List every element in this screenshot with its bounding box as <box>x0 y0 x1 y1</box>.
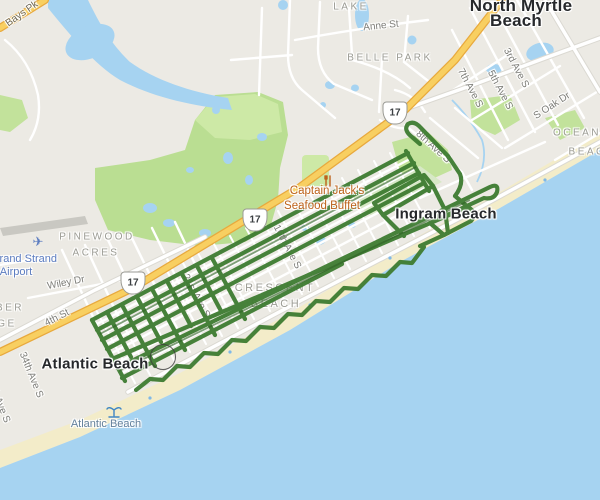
highway-17-shield-middle: 17 <box>243 209 268 232</box>
poi-label-seafood-buffet[interactable]: Seafood Buffet <box>284 200 360 212</box>
top-label-layer: 17 17 17 North Myrtle Beach Atlantic Bea… <box>0 0 600 500</box>
poi-label-captain-jacks[interactable]: Captain Jack's <box>290 185 364 197</box>
city-label-north-myrtle: North Myrtle <box>470 0 573 16</box>
airplane-icon: ✈ <box>33 234 44 250</box>
map-canvas[interactable]: Bays Pk Anne St 3rd Ave S 5th Ave S 7th … <box>0 0 600 500</box>
city-label-atlantic-beach: Atlantic Beach <box>42 356 149 373</box>
beach-label-atlantic-beach: Atlantic Beach <box>71 418 141 430</box>
track-marker-circle[interactable] <box>150 344 176 370</box>
highway-17-shield-north: 17 <box>383 102 408 125</box>
city-label-ingram-beach: Ingram Beach <box>395 206 497 223</box>
airport-label-line1: Grand Strand <box>0 253 57 265</box>
highway-17-shield-south: 17 <box>121 272 146 295</box>
city-label-north-myrtle-beach: Beach <box>490 11 542 31</box>
airport-label-line2: Airport <box>0 266 32 278</box>
